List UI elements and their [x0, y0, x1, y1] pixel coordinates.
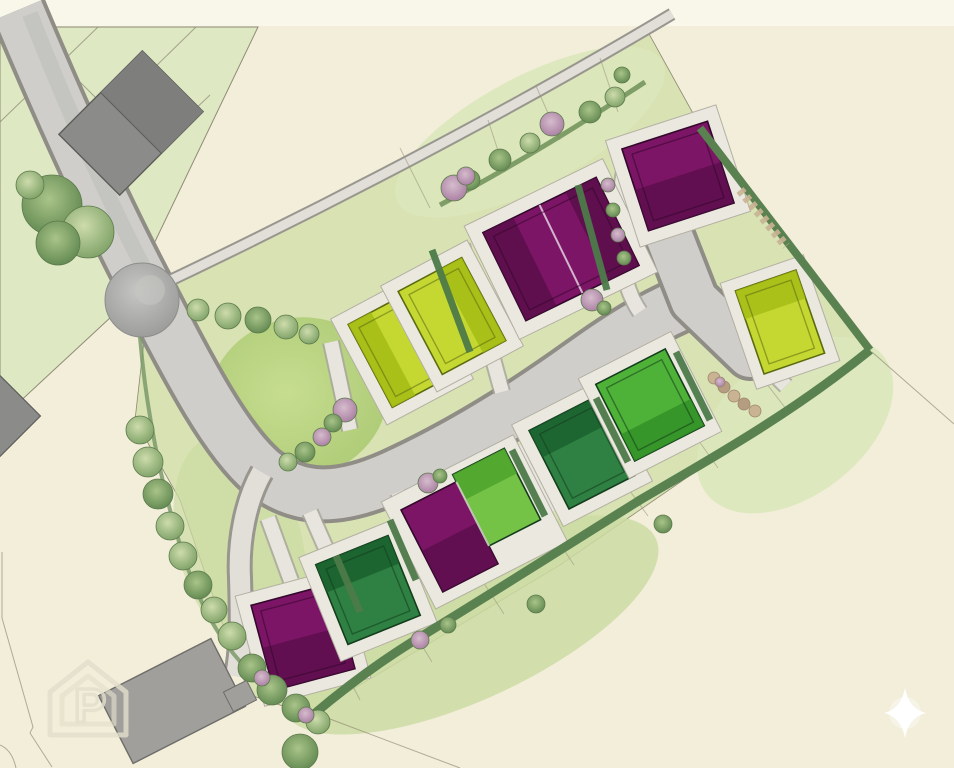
tree-icon [143, 479, 173, 509]
tree-icon [299, 324, 319, 344]
flowering-shrub-icon [540, 112, 564, 136]
tree-icon [126, 416, 154, 444]
flowering-shrub-icon [601, 178, 615, 192]
tree-icon [274, 315, 298, 339]
tree-icon [282, 734, 318, 768]
tree-icon [156, 512, 184, 540]
watermark-letter: P [74, 680, 106, 733]
shrub-icon [614, 67, 630, 83]
flowering-shrub-icon [254, 670, 270, 686]
shrub-icon [527, 595, 545, 613]
tree-icon [36, 221, 80, 265]
shrub-icon [295, 442, 315, 462]
top-margin-strip [0, 0, 954, 26]
shrub-icon [489, 149, 511, 171]
flowering-shrub-icon [298, 707, 314, 723]
tree-icon [133, 447, 163, 477]
shrub-icon [605, 87, 625, 107]
site-plan-svg: P [0, 0, 954, 768]
shrub-icon [440, 617, 456, 633]
shrub-icon [279, 453, 297, 471]
tree-icon [184, 571, 212, 599]
flowering-shrub-icon [457, 167, 475, 185]
tree-icon [215, 303, 241, 329]
flowering-shrub-icon [411, 631, 429, 649]
shrub-icon [606, 203, 620, 217]
flowering-shrub-icon [313, 428, 331, 446]
feature-tree-grey [105, 263, 179, 337]
shrub-icon [617, 251, 631, 265]
shrub-icon [433, 469, 447, 483]
tree-icon [16, 171, 44, 199]
site-plan-canvas: P [0, 0, 954, 768]
shrub-icon [579, 101, 601, 123]
shrub-icon [654, 515, 672, 533]
tree-icon [245, 307, 271, 333]
tree-icon [187, 299, 209, 321]
tree-icon [218, 622, 246, 650]
shrub-icon [520, 133, 540, 153]
shrub-icon [597, 301, 611, 315]
flowering-shrub-icon [611, 228, 625, 242]
tree-icon [169, 542, 197, 570]
tree-icon [201, 597, 227, 623]
